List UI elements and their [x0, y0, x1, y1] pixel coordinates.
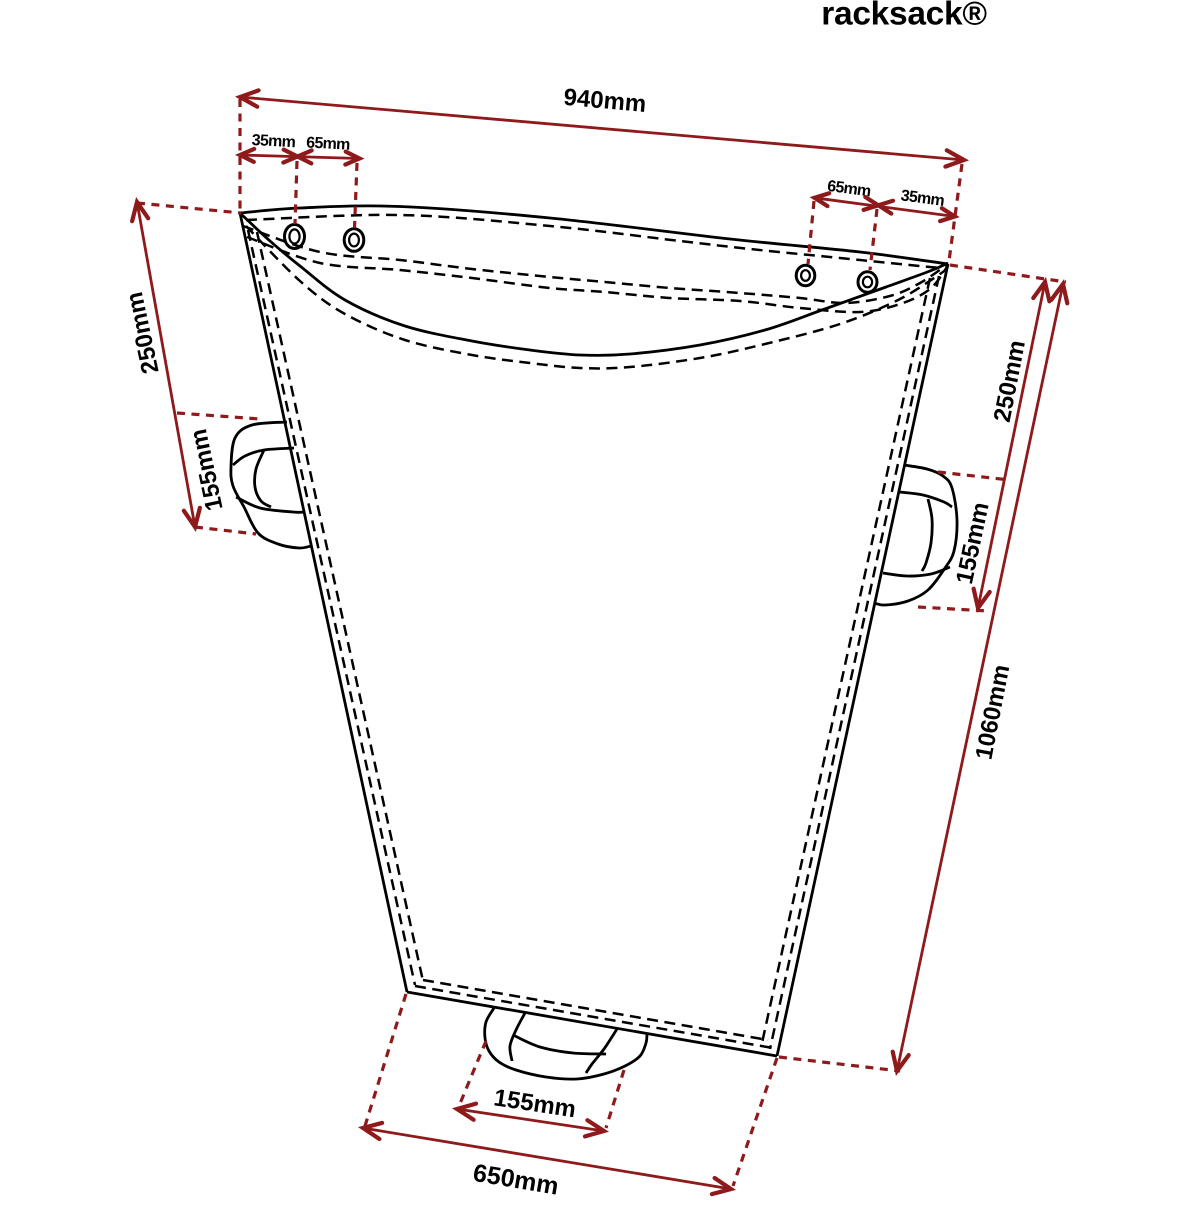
svg-text:940mm: 940mm — [563, 84, 648, 118]
svg-text:65mm: 65mm — [306, 134, 351, 153]
svg-text:racksack®: racksack® — [821, 0, 987, 33]
svg-text:65mm: 65mm — [826, 178, 872, 201]
svg-text:1060mm: 1060mm — [970, 662, 1015, 761]
svg-text:35mm: 35mm — [251, 132, 296, 151]
svg-text:35mm: 35mm — [900, 187, 946, 210]
svg-text:650mm: 650mm — [471, 1159, 561, 1200]
svg-text:250mm: 250mm — [121, 290, 165, 377]
